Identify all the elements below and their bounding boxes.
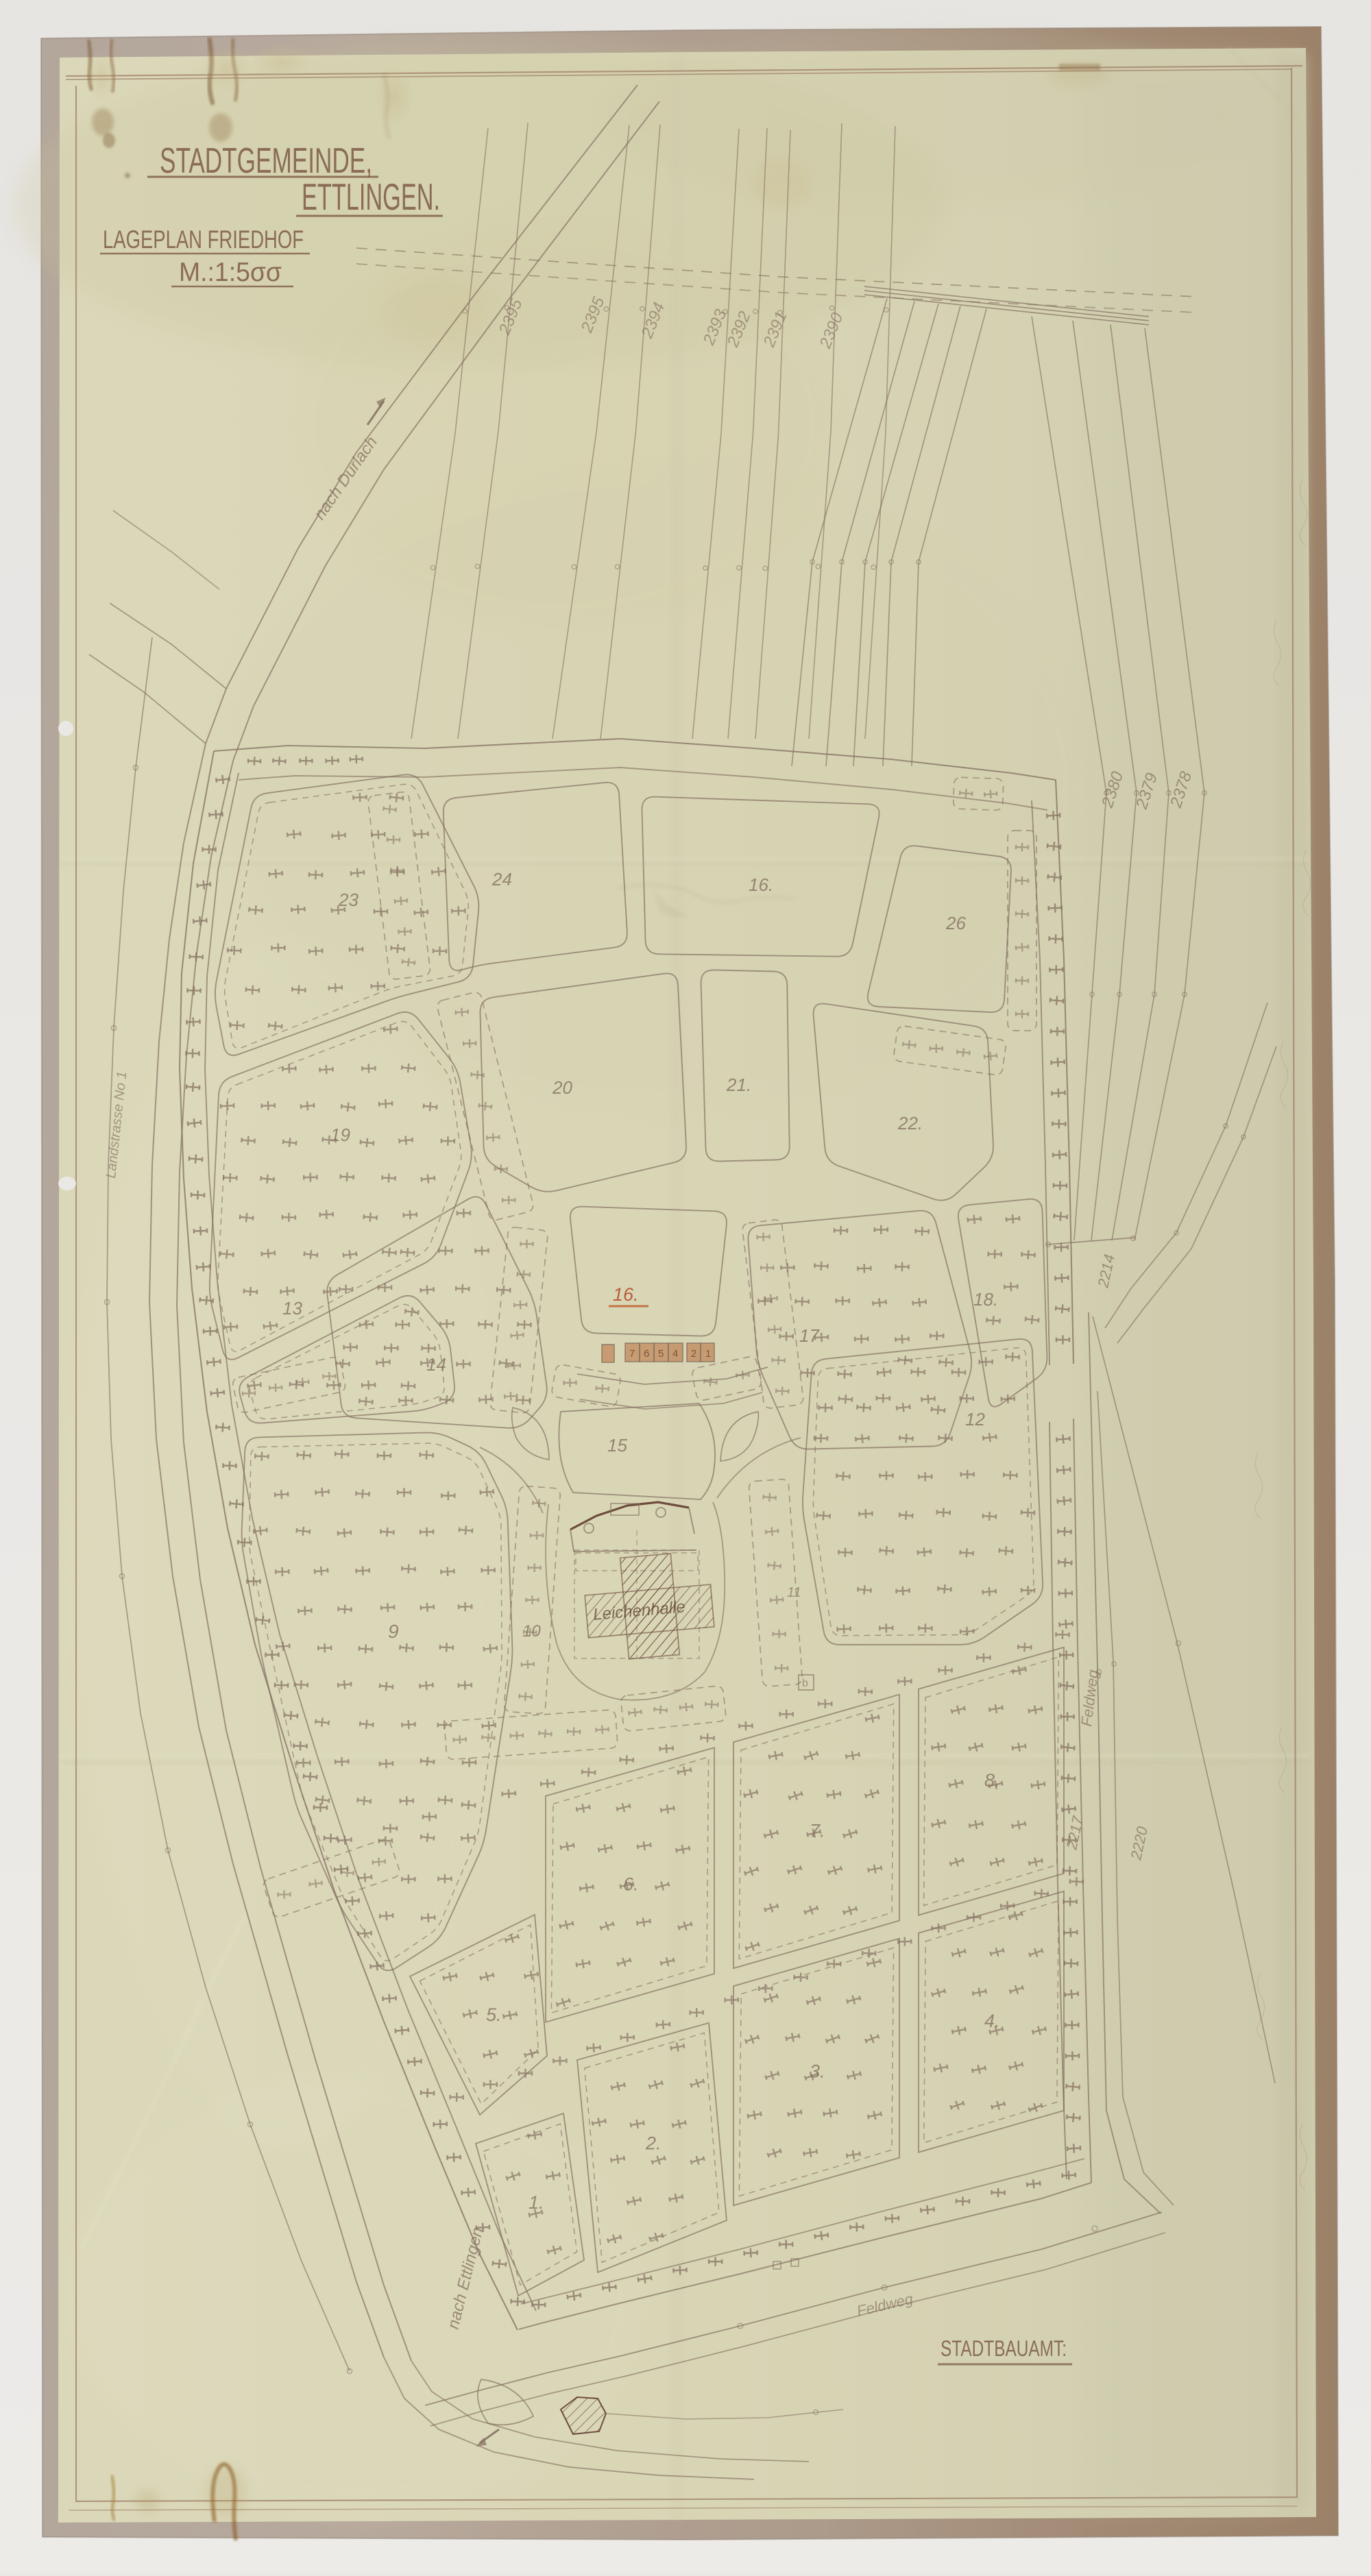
svg-text:6: 6 <box>644 1348 649 1360</box>
svg-text:M.:1:5σσ: M.:1:5σσ <box>179 258 282 287</box>
svg-text:b: b <box>802 1678 808 1689</box>
svg-text:18.: 18. <box>973 1289 998 1310</box>
svg-text:13: 13 <box>282 1298 302 1318</box>
svg-text:STADTBAUAMT:: STADTBAUAMT: <box>941 2336 1067 2361</box>
svg-text:23: 23 <box>338 890 359 910</box>
svg-text:9: 9 <box>388 1621 399 1642</box>
svg-text:20: 20 <box>552 1077 572 1098</box>
svg-text:2: 2 <box>691 1348 696 1360</box>
svg-text:17: 17 <box>799 1325 820 1346</box>
svg-text:16.: 16. <box>749 874 773 895</box>
svg-text:21.: 21. <box>726 1075 751 1095</box>
svg-text:5: 5 <box>658 1348 664 1360</box>
svg-text:1.: 1. <box>529 2192 544 2213</box>
svg-text:15: 15 <box>607 1435 627 1456</box>
svg-text:7.: 7. <box>810 1820 825 1841</box>
svg-text:6.: 6. <box>623 1874 639 1895</box>
svg-text:2.: 2. <box>645 2133 662 2154</box>
svg-text:3.: 3. <box>810 2061 825 2081</box>
svg-text:8.: 8. <box>984 1770 1000 1791</box>
svg-text:1: 1 <box>705 1348 711 1360</box>
svg-text:22.: 22. <box>897 1113 923 1133</box>
svg-text:10: 10 <box>522 1622 541 1641</box>
svg-text:16.: 16. <box>613 1284 639 1305</box>
svg-text:4.: 4. <box>984 2011 1000 2031</box>
svg-text:ETTLINGEN.: ETTLINGEN. <box>302 175 440 218</box>
svg-text:19: 19 <box>330 1125 350 1145</box>
svg-text:LAGEPLAN FRIEDHOF: LAGEPLAN FRIEDHOF <box>103 225 304 254</box>
svg-text:12: 12 <box>965 1409 985 1430</box>
svg-text:5.: 5. <box>486 2004 502 2025</box>
svg-text:14: 14 <box>426 1354 446 1375</box>
svg-text:11: 11 <box>787 1585 801 1600</box>
svg-text:4: 4 <box>672 1348 678 1360</box>
svg-text:24: 24 <box>492 869 512 890</box>
svg-text:7: 7 <box>629 1348 635 1360</box>
svg-text:26: 26 <box>945 913 966 933</box>
